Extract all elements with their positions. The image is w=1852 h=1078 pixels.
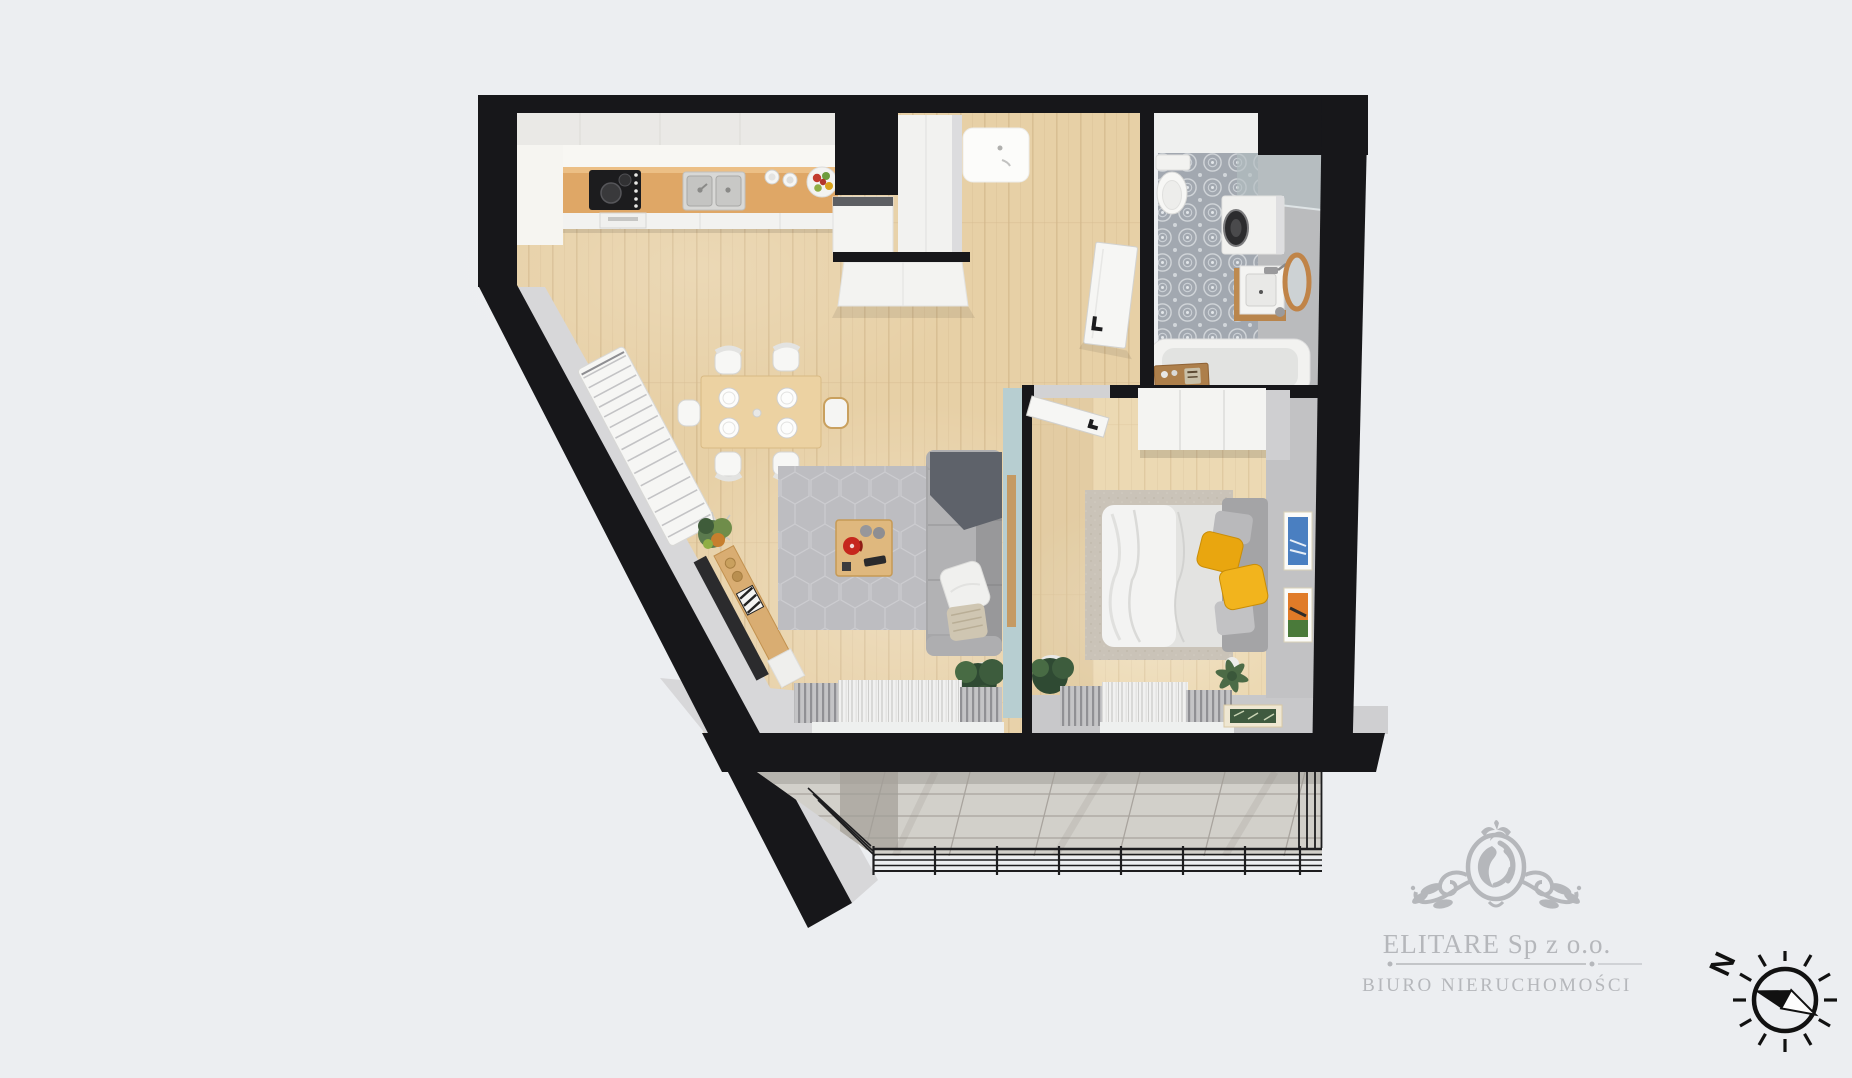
bed: [1102, 498, 1269, 652]
table-candle: [753, 409, 761, 417]
radiator-right: [960, 687, 1002, 725]
framed-picture-orange: [1284, 588, 1312, 642]
radiator-left: [1060, 686, 1104, 726]
white-curtain: [1102, 682, 1188, 726]
flourish-right: [1523, 873, 1582, 911]
south-wall: [702, 733, 1385, 772]
white-curtain: [838, 680, 962, 724]
fridge: [833, 197, 893, 253]
north-wall: [478, 95, 1368, 113]
teal-wall-wood-trim: [1007, 475, 1016, 627]
radiator-left: [794, 683, 838, 723]
coffee-table: [836, 520, 892, 576]
hall-tall-cabinet: [898, 115, 962, 255]
west-wall: [478, 95, 517, 287]
compass-needle-icon: [1752, 983, 1820, 1016]
knit-blanket: [946, 603, 988, 642]
bedroom-wardrobe: [1138, 388, 1290, 460]
sofa: [926, 450, 1002, 656]
living-bedroom-wall: [1022, 388, 1032, 735]
bathroom-top-wall-face: [1155, 113, 1258, 153]
living-window: [794, 680, 1004, 737]
bedroom-door-opening: [1034, 385, 1110, 398]
compass-north-label: N: [1703, 947, 1742, 981]
bathroom-bin: [1275, 307, 1285, 317]
compass-icon: N: [1703, 947, 1837, 1052]
flourish-left: [1410, 873, 1469, 911]
bathroom-vanity: [1234, 264, 1286, 321]
round-mirror: [1285, 255, 1309, 309]
hall-bathroom-wall: [1140, 113, 1154, 393]
hall-ceiling-lamp: [963, 128, 1029, 182]
kitchen-wall-chunk: [835, 113, 898, 195]
oven-vent: [608, 217, 638, 221]
hall-wall-stub: [833, 252, 970, 262]
watermark-divider: [1388, 962, 1643, 967]
bottom-wall-top-face: [1348, 706, 1388, 734]
lion-emblem-icon: [1410, 820, 1582, 910]
hall-wardrobe: [832, 262, 975, 318]
cooktop: [589, 170, 641, 210]
watermark-tagline: BIURO NIERUCHOMOŚCI: [1362, 974, 1632, 996]
floor-plan-canvas: ELITARE Sp z o.o. BIURO NIERUCHOMOŚCI: [0, 0, 1852, 1078]
kitchen-sink: [683, 172, 745, 210]
framed-picture-blue: [1284, 512, 1312, 570]
fruit-bowl: [807, 167, 837, 197]
agency-watermark: ELITARE Sp z o.o. BIURO NIERUCHOMOŚCI: [1362, 820, 1642, 996]
yellow-pillow: [1218, 563, 1269, 611]
door-mat: [1224, 705, 1282, 727]
washing-machine: [1222, 196, 1284, 254]
floor-plan-render: ELITARE Sp z o.o. BIURO NIERUCHOMOŚCI: [0, 0, 1852, 1078]
kitchen-upper-cabinet-band: [517, 113, 835, 145]
watermark-company-name: ELITARE Sp z o.o.: [1383, 929, 1612, 959]
